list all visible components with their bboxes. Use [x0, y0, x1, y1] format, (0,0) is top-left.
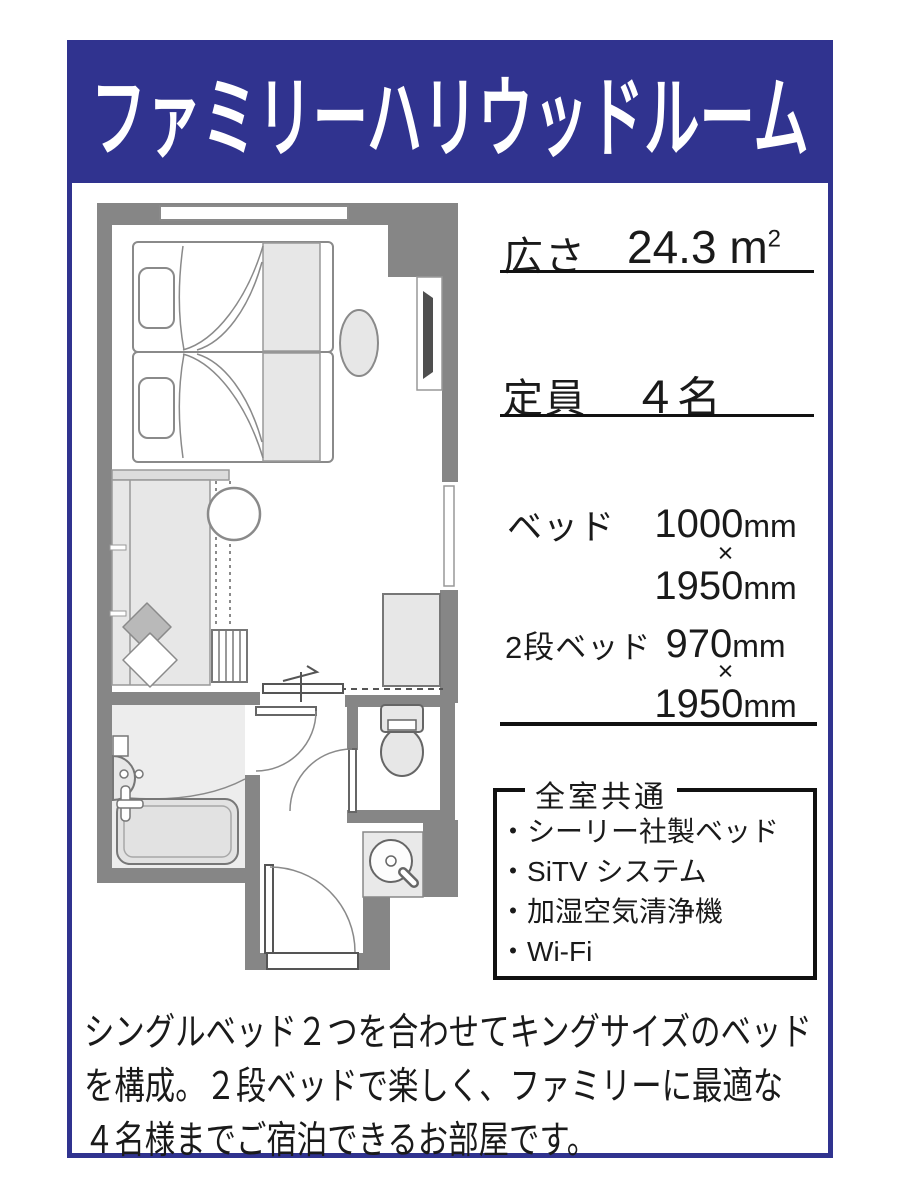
- amenities-box: 全室共通 シーリー社製ベッド SiTV システム 加湿空気清浄機 Wi-Fi: [493, 788, 817, 980]
- divider-rule: [500, 414, 814, 417]
- area-unit-exponent: 2: [768, 226, 781, 253]
- bunk-length: 1950mm: [643, 682, 808, 727]
- floor-plan: [93, 200, 463, 980]
- toilet-bowl: [381, 728, 423, 776]
- threshold: [267, 953, 358, 969]
- round-stool: [208, 488, 260, 540]
- sliding-panel: [444, 486, 454, 586]
- header-banner: ファミリーハリウッドルーム: [67, 40, 833, 183]
- tv-cabinet: [417, 277, 442, 390]
- amenities-title: 全室共通: [525, 772, 677, 816]
- list-item: Wi-Fi: [499, 932, 813, 972]
- window: [160, 206, 348, 220]
- divider-rule: [500, 722, 817, 726]
- list-item: シーリー社製ベッド: [499, 812, 813, 852]
- divider-rule: [500, 270, 814, 273]
- bathroom-door: [256, 707, 316, 771]
- closet: [383, 594, 440, 686]
- room-flyer: ファミリーハリウッドルーム: [0, 0, 900, 1200]
- bed-length: 1950mm: [643, 564, 808, 609]
- toilet-door: [290, 749, 356, 812]
- list-item: SiTV システム: [499, 852, 813, 892]
- tv: [423, 291, 433, 379]
- description-line: ４名様までご宿泊できるお部屋です。: [84, 1114, 812, 1168]
- bathroom: [112, 705, 316, 868]
- bunk-label: 2段ベッド: [505, 622, 651, 667]
- list-item: 加湿空気清浄機: [499, 892, 813, 932]
- entrance-door: [265, 865, 358, 969]
- ottoman: [340, 310, 378, 376]
- amenities-list: シーリー社製ベッド SiTV システム 加湿空気清浄機 Wi-Fi: [499, 812, 813, 972]
- sliding-partition: [263, 666, 343, 702]
- pillow-1: [139, 268, 174, 328]
- twin-beds: [133, 242, 333, 462]
- description-line: シングルベッド２つを合わせてキングサイズのベッド: [84, 1006, 812, 1060]
- shelf: [113, 736, 128, 756]
- duvet-1: [263, 243, 320, 351]
- page-title: ファミリーハリウッドルーム: [91, 48, 809, 175]
- room-description: シングルベッド２つを合わせてキングサイズのベッド を構成。２段ベッドで楽しく、フ…: [84, 1006, 812, 1168]
- pillow-2: [139, 378, 174, 438]
- description-line: を構成。２段ベッドで楽しく、ファミリーに最適な: [84, 1060, 812, 1114]
- bed-label: ベッド: [507, 499, 615, 550]
- vanity-sink: [363, 832, 423, 897]
- duvet-2: [263, 353, 320, 461]
- ladder: [212, 630, 247, 682]
- area-value: 24.3 m2: [627, 220, 781, 274]
- counter: [112, 470, 229, 480]
- area-label: 広さ: [503, 224, 587, 282]
